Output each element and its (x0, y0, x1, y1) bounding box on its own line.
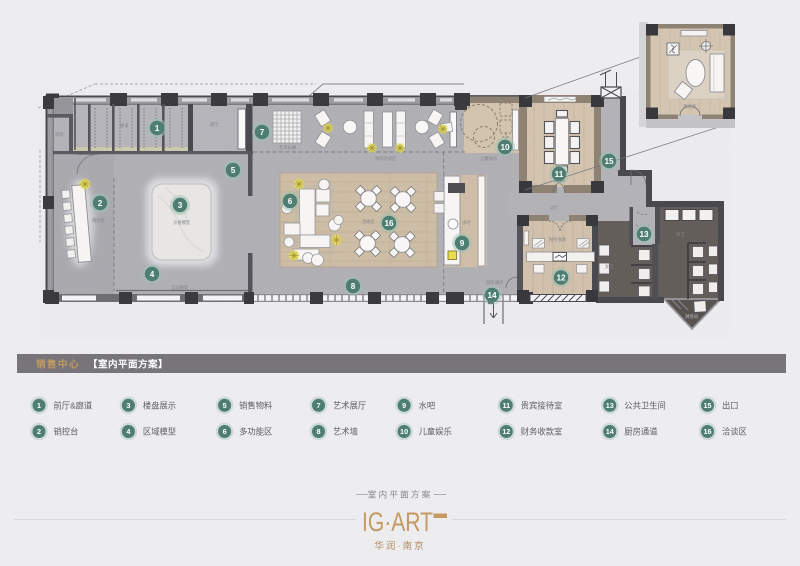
svg-text:IG·ART: IG·ART (362, 507, 433, 537)
svg-text:廊道: 廊道 (120, 122, 129, 129)
svg-text:女卫: 女卫 (605, 263, 614, 270)
svg-text:销控台: 销控台 (92, 217, 105, 224)
svg-text:2: 2 (37, 427, 41, 436)
svg-text:9: 9 (402, 401, 406, 410)
svg-text:11: 11 (555, 170, 564, 179)
svg-text:水吧: 水吧 (462, 219, 471, 225)
svg-text:艺术墙: 艺术墙 (333, 427, 358, 437)
svg-text:10: 10 (400, 427, 408, 436)
svg-text:8: 8 (316, 427, 320, 436)
svg-text:淋浴间: 淋浴间 (685, 313, 698, 320)
svg-text:休闲洽谈区: 休闲洽谈区 (375, 155, 397, 162)
svg-text:销售中心: 销售中心 (36, 359, 80, 371)
svg-text:财务收款: 财务收款 (549, 236, 567, 243)
svg-text:14: 14 (606, 427, 615, 436)
svg-text:儿童娱乐: 儿童娱乐 (480, 155, 498, 162)
svg-text:出口: 出口 (722, 400, 739, 410)
svg-text:机房: 机房 (55, 131, 64, 138)
svg-text:儿童娱乐: 儿童娱乐 (419, 427, 452, 437)
svg-text:9: 9 (460, 239, 465, 248)
svg-text:华润·南京: 华润·南京 (374, 540, 425, 552)
svg-text:3: 3 (126, 401, 130, 410)
svg-text:贵宾接待室: 贵宾接待室 (521, 400, 563, 410)
svg-text:12: 12 (502, 427, 510, 436)
svg-text:互动展墙: 互动展墙 (171, 284, 189, 291)
svg-text:水吧: 水吧 (419, 400, 436, 410)
svg-text:5: 5 (231, 166, 236, 175)
svg-text:【室内平面方案】: 【室内平面方案】 (88, 359, 168, 371)
svg-text:10: 10 (500, 143, 510, 152)
svg-text:前厅: 前厅 (210, 121, 219, 128)
svg-text:14: 14 (487, 291, 497, 300)
svg-text:销控台: 销控台 (54, 427, 79, 437)
svg-text:1: 1 (37, 401, 41, 410)
svg-text:16: 16 (703, 427, 711, 436)
svg-text:厨房通道: 厨房通道 (624, 427, 657, 437)
svg-text:厨房通道: 厨房通道 (486, 279, 504, 286)
svg-text:公共卫生间: 公共卫生间 (624, 400, 666, 410)
svg-text:7: 7 (260, 128, 265, 137)
svg-text:16: 16 (384, 219, 394, 228)
svg-text:艺术展厅: 艺术展厅 (333, 400, 366, 410)
svg-text:11: 11 (502, 401, 510, 410)
svg-text:15: 15 (604, 157, 614, 166)
svg-text:前厅&廊道: 前厅&廊道 (54, 400, 93, 410)
svg-text:销售物料: 销售物料 (239, 400, 273, 410)
svg-text:沙盘模型: 沙盘模型 (173, 219, 191, 226)
svg-text:4: 4 (150, 270, 155, 279)
svg-text:5: 5 (223, 401, 227, 410)
svg-text:6: 6 (288, 197, 293, 206)
svg-text:洽谈区: 洽谈区 (722, 427, 747, 437)
svg-text:贵宾室: 贵宾室 (683, 103, 697, 110)
svg-text:室内平面方案: 室内平面方案 (368, 489, 433, 500)
svg-text:1: 1 (155, 124, 160, 133)
svg-text:财务收款室: 财务收款室 (521, 427, 563, 437)
svg-text:13: 13 (639, 230, 649, 239)
svg-text:7: 7 (316, 401, 320, 410)
svg-text:12: 12 (556, 274, 566, 283)
svg-text:过厅: 过厅 (550, 204, 559, 211)
svg-text:艺术长廊: 艺术长廊 (279, 144, 297, 151)
svg-text:洽谈区: 洽谈区 (362, 218, 376, 225)
svg-text:3: 3 (178, 201, 183, 210)
svg-text:6: 6 (223, 427, 227, 436)
svg-text:2: 2 (98, 199, 103, 208)
svg-text:13: 13 (606, 401, 614, 410)
svg-text:多功能区: 多功能区 (239, 427, 272, 437)
svg-text:15: 15 (703, 401, 711, 410)
svg-text:区域模型: 区域模型 (143, 427, 176, 437)
svg-text:8: 8 (351, 282, 356, 291)
svg-text:楼盘展示: 楼盘展示 (143, 400, 176, 410)
